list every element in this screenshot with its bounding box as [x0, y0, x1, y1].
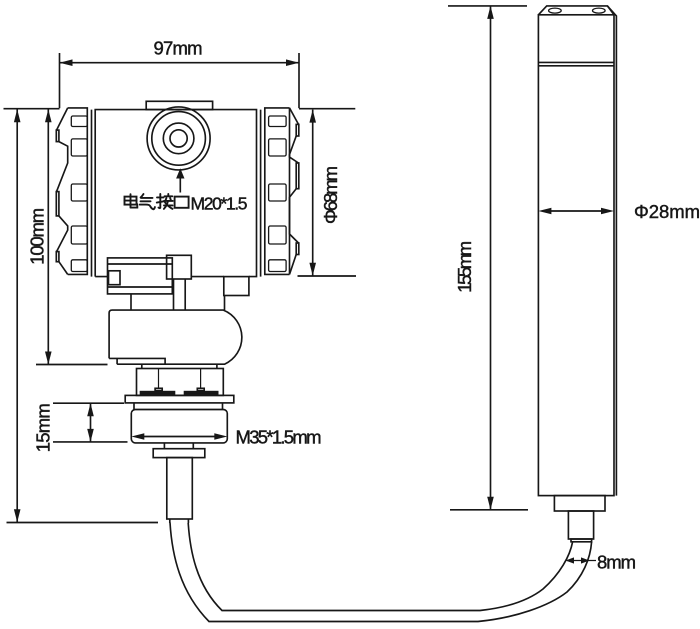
svg-text:M20*1.5: M20*1.5 [191, 194, 248, 214]
svg-text:100mm: 100mm [27, 208, 48, 265]
svg-text:Φ28mm: Φ28mm [634, 201, 700, 222]
svg-text:Φ68mm: Φ68mm [320, 166, 341, 224]
svg-text:15mm: 15mm [33, 403, 54, 452]
svg-text:155mm: 155mm [454, 241, 475, 293]
svg-text:M35*1.5mm: M35*1.5mm [236, 427, 322, 448]
svg-text:8mm: 8mm [597, 552, 636, 573]
svg-text:97mm: 97mm [154, 38, 203, 59]
